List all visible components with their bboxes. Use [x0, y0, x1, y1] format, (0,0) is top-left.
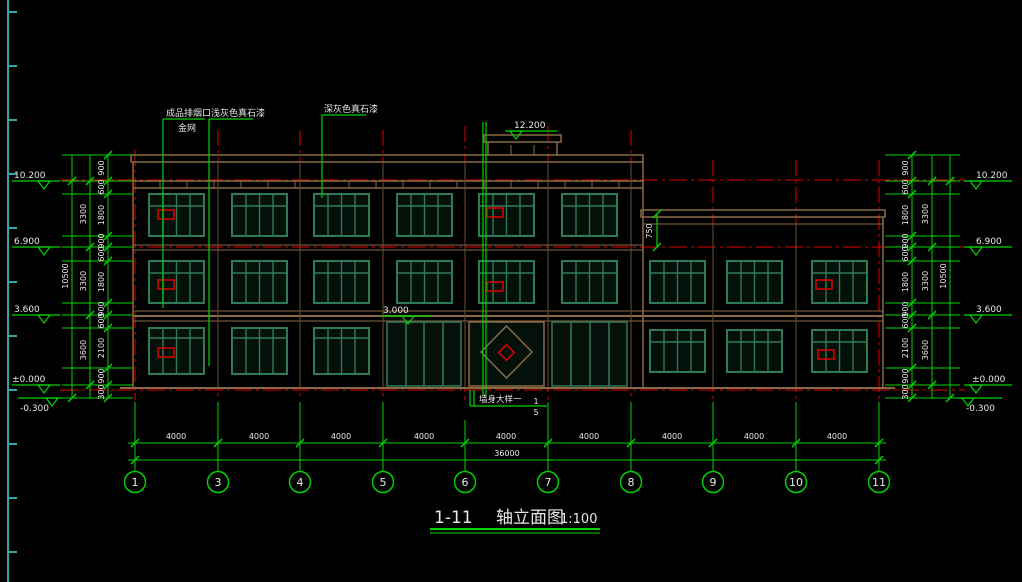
level-text-ground-right: ±0.000 — [972, 375, 1006, 385]
detail-bubble-number: 1 — [533, 397, 538, 406]
svg-text:7: 7 — [545, 476, 552, 489]
svg-text:600: 600 — [97, 313, 106, 328]
drawing-title: 1-11 轴立面图 1:100 — [430, 508, 600, 533]
svg-text:900: 900 — [97, 160, 106, 175]
title-name: 轴立面图 — [496, 508, 564, 528]
svg-text:1800: 1800 — [901, 205, 910, 225]
svg-text:3300: 3300 — [921, 271, 930, 291]
svg-text:3: 3 — [215, 476, 222, 489]
windows-2f — [149, 261, 867, 303]
svg-text:3300: 3300 — [79, 271, 88, 291]
svg-text:900: 900 — [901, 160, 910, 175]
svg-text:4: 4 — [297, 476, 304, 489]
svg-text:3600: 3600 — [921, 340, 930, 360]
svg-text:1: 1 — [132, 476, 139, 489]
svg-text:9: 9 — [710, 476, 717, 489]
level-text-3f-right: 6.900 — [976, 237, 1002, 247]
level-markers-left — [12, 181, 62, 406]
bay-dimension-texts: 4000 4000 4000 4000 4000 4000 4000 4000 … — [166, 432, 847, 458]
svg-text:3600: 3600 — [79, 340, 88, 360]
svg-text:11: 11 — [872, 476, 886, 489]
svg-text:4000: 4000 — [662, 432, 682, 441]
wall-detail-label: 墙身大样一 — [479, 394, 522, 405]
entrance-doors — [469, 322, 544, 386]
callout-dark-gray-paint: 深灰色真石漆 — [324, 103, 378, 115]
detail-bubble-sheet: 5 — [533, 408, 538, 417]
svg-text:4000: 4000 — [166, 432, 186, 441]
svg-text:900: 900 — [97, 233, 106, 248]
svg-text:3300: 3300 — [921, 204, 930, 224]
level-text-3f-left: 6.900 — [14, 237, 40, 247]
svg-text:900: 900 — [901, 368, 910, 383]
svg-text:2100: 2100 — [97, 338, 106, 358]
canopy-level-text: 3.000 — [383, 306, 409, 316]
level-text-base-right: -0.300 — [966, 404, 995, 414]
svg-text:5: 5 — [380, 476, 387, 489]
svg-text:10500: 10500 — [61, 263, 70, 288]
svg-text:600: 600 — [901, 179, 910, 194]
svg-text:600: 600 — [97, 179, 106, 194]
svg-text:3300: 3300 — [79, 204, 88, 224]
callout-vent: 成品排烟口 — [166, 107, 211, 119]
svg-text:4000: 4000 — [496, 432, 516, 441]
svg-text:4000: 4000 — [414, 432, 434, 441]
level-text-base-left: -0.300 — [20, 404, 49, 414]
svg-text:6: 6 — [462, 476, 469, 489]
svg-text:1800: 1800 — [901, 272, 910, 292]
total-dimension-text: 36000 — [494, 449, 519, 458]
svg-text:600: 600 — [97, 246, 106, 261]
svg-text:1800: 1800 — [97, 205, 106, 225]
level-text-roof-left: 10.200 — [14, 171, 46, 181]
dim-texts-left: 900 600 1800 900 600 1800 900 600 2100 9… — [61, 160, 106, 399]
svg-text:4000: 4000 — [249, 432, 269, 441]
svg-text:4000: 4000 — [744, 432, 764, 441]
svg-text:10500: 10500 — [939, 263, 948, 288]
callout-vent-line2: 金网 — [178, 122, 196, 134]
svg-text:300: 300 — [97, 384, 106, 399]
title-scale: 1:100 — [560, 512, 597, 527]
level-text-2f-right: 3.600 — [976, 305, 1002, 315]
svg-text:600: 600 — [901, 313, 910, 328]
svg-text:1800: 1800 — [97, 272, 106, 292]
svg-text:900: 900 — [97, 368, 106, 383]
svg-text:8: 8 — [628, 476, 635, 489]
svg-text:10: 10 — [789, 476, 803, 489]
wing-parapet — [641, 210, 885, 217]
main-parapet — [131, 155, 643, 162]
cad-viewport: 成品排烟口 金网 浅灰色真石漆 深灰色真石漆 墙身大样一 1 5 12.200 … — [0, 0, 1022, 582]
svg-text:600: 600 — [901, 246, 910, 261]
level-text-2f-left: 3.600 — [14, 305, 40, 315]
bulkhead-cap — [484, 135, 561, 142]
bulkhead-level-text: 12.200 — [514, 121, 546, 131]
callout-light-gray-paint: 浅灰色真石漆 — [211, 107, 265, 119]
level-markers-right — [958, 181, 1012, 406]
svg-text:900: 900 — [901, 233, 910, 248]
level-text-roof-right: 10.200 — [976, 171, 1008, 181]
left-ruler — [8, 0, 17, 582]
svg-text:2100: 2100 — [901, 338, 910, 358]
title-axis-range: 1-11 — [434, 508, 473, 528]
level-text-ground-left: ±0.000 — [12, 375, 46, 385]
svg-text:300: 300 — [901, 384, 910, 399]
axis-bubbles: 1 3 4 5 6 7 8 9 10 11 — [125, 472, 890, 493]
svg-text:4000: 4000 — [579, 432, 599, 441]
svg-text:4000: 4000 — [331, 432, 351, 441]
wing-parapet-dim — [653, 210, 661, 251]
svg-text:4000: 4000 — [827, 432, 847, 441]
wing-parapet-dim-text: 750 — [645, 223, 654, 238]
dim-texts-right: 900 600 1800 900 600 1800 900 600 2100 9… — [901, 160, 948, 399]
